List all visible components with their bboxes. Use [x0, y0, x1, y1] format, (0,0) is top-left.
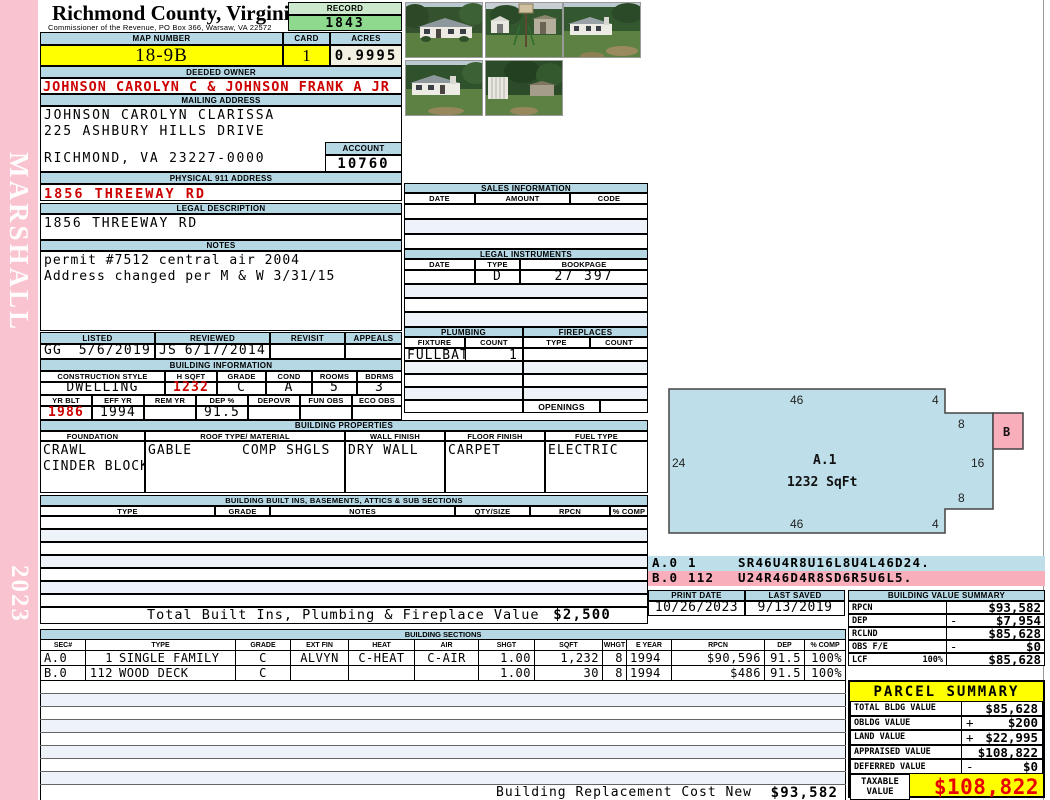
parcel-total-bldg-value: $85,628 — [985, 701, 1038, 716]
instrument-date-header: DATE — [404, 259, 475, 270]
type-b: 112WOOD DECK — [86, 666, 236, 681]
listed-value: GG 5/6/2019 — [40, 344, 155, 359]
parcel-summary-title: PARCEL SUMMARY — [850, 682, 1043, 701]
yrblt-value: 1986 — [40, 406, 92, 420]
instrument-row-bookpage: 27 397 — [520, 270, 648, 284]
extfin-b — [291, 666, 349, 681]
photo-house-lawn-image — [406, 61, 483, 116]
col-grade: GRADE — [236, 640, 291, 651]
col-sec: SEC# — [41, 640, 86, 651]
dep-a: 91.5 — [765, 651, 805, 666]
notes-box: permit #7512 central air 2004 Address ch… — [40, 251, 402, 331]
col-eyear: E YEAR — [627, 640, 672, 651]
notes-line-1: permit #7512 central air 2004 — [44, 254, 300, 269]
fireplace-row-empty — [523, 348, 648, 361]
taxable-label-line2: VALUE — [866, 787, 893, 797]
foundation-value: CRAWL CINDER BLOCK — [40, 441, 145, 493]
bdrms-value: 3 — [357, 382, 402, 395]
vector-a-path: SR46U4R8U16L8U4L46D24. — [738, 556, 930, 570]
sidebar-year-label: 2023 — [5, 565, 33, 623]
ecoobs-header: ECO OBS — [352, 395, 402, 406]
sketch-dim-bottom-step: 4 — [932, 517, 939, 531]
mailing-address-header: MAILING ADDRESS — [40, 94, 402, 106]
building-sections-table: BUILDING SECTIONS SEC# TYPE GRADE EXT FI… — [40, 629, 846, 800]
building-value-summary: RPCN $93,582 DEP -$7,954 RCLND $85,628 O… — [848, 601, 1045, 666]
parcel-deferred-label: DEFERRED VALUE — [850, 759, 962, 774]
col-heat: HEAT — [349, 640, 415, 651]
extfin-a: ALVYN — [291, 651, 349, 666]
plumbing-count-header: COUNT — [465, 337, 523, 348]
builtins-notes-header: NOTES — [270, 506, 455, 516]
type-b-name: WOOD DECK — [119, 666, 189, 680]
appeals-header: APPEALS — [345, 332, 402, 344]
sketch-area-sqft: 1232 SqFt — [787, 475, 857, 490]
mailing-line-1: JOHNSON CAROLYN CLARISSA — [44, 109, 275, 124]
col-type: TYPE — [86, 640, 236, 651]
parcel-obldg-sign: + — [966, 715, 974, 730]
parcel-row-obldg: OBLDG VALUE +$200 — [850, 716, 1043, 731]
grade-b: C — [236, 666, 291, 681]
sketch-area-label: A.1 — [813, 453, 837, 468]
instrument-row-empty — [404, 298, 648, 312]
sales-row-empty — [404, 204, 648, 219]
replacement-cost-label: Building Replacement Cost New — [496, 786, 752, 800]
legal-description-header: LEGAL DESCRIPTION — [40, 203, 402, 214]
sketch-dim-top: 46 — [790, 393, 804, 407]
foundation-header: FOUNDATION — [40, 431, 145, 441]
vector-b-path: U24R46D4R8SD6R5U6L5. — [738, 571, 913, 585]
foundation-line-1: CRAWL — [43, 444, 87, 459]
sketch-dim-left: 24 — [672, 456, 686, 470]
photo-yard-basketball-hoop[interactable] — [485, 2, 563, 58]
building-information-header: BUILDING INFORMATION — [40, 359, 402, 371]
photo-house-side-yard[interactable] — [563, 2, 641, 58]
vs-dep-label: DEP — [852, 616, 867, 626]
property-record-card: MARSHALL 2023 Richmond County, Virginia … — [0, 0, 1050, 800]
vs-lcf-pct: 100% — [923, 655, 943, 665]
vs-lcf-label: LCF — [852, 655, 867, 665]
plumbing-row-empty — [404, 387, 523, 400]
air-a: C-AIR — [415, 651, 479, 666]
legal-instruments-header: LEGAL INSTRUMENTS — [404, 249, 648, 259]
floor-finish-text: CARPET — [448, 444, 501, 459]
roof-header: ROOF TYPE/ MATERIAL — [145, 431, 345, 441]
whgt-b: 8 — [603, 666, 627, 681]
shgt-a: 1.00 — [479, 651, 535, 666]
physical-address-value: 1856 THREEWAY RD — [40, 184, 402, 201]
section-row-empty — [41, 746, 846, 759]
builtins-total-label: Total Built Ins, Plumbing & Fireplace Va… — [147, 608, 540, 624]
parcel-row-taxable: TAXABLE VALUE $108,822 — [850, 774, 1043, 800]
section-row-empty — [41, 707, 846, 720]
builtins-header: BUILDING BUILT INS, BASEMENTS, ATTICS & … — [40, 495, 648, 506]
remyr-value — [144, 406, 196, 420]
deeded-owner-header: DEEDED OWNER — [40, 66, 402, 78]
card-value: 1 — [283, 45, 330, 66]
builtins-row-empty — [40, 581, 648, 594]
physical-address-text: 1856 THREEWAY RD — [44, 187, 206, 203]
col-dep: DEP — [765, 640, 805, 651]
instrument-row-empty — [404, 312, 648, 327]
air-b — [415, 666, 479, 681]
comp-a: 100% — [805, 651, 846, 666]
card-header: CARD — [283, 32, 330, 45]
col-air: AIR — [415, 640, 479, 651]
parcel-land-value: $22,995 — [985, 730, 1038, 745]
parcel-obldg-value: $200 — [1008, 715, 1038, 730]
depovr-header: DEPOVR — [248, 395, 300, 406]
section-row-a: A.0 1SINGLE FAMILY C ALVYN C-HEAT C-AIR … — [41, 651, 846, 666]
sketch-dim-right-upper: 8 — [958, 417, 965, 431]
fuel-type-header: FUEL TYPE — [545, 431, 648, 441]
heat-b — [349, 666, 415, 681]
rpcn-a: $90,596 — [672, 651, 765, 666]
rooms-value: 5 — [312, 382, 357, 395]
grade-a: C — [236, 651, 291, 666]
depovr-value — [248, 406, 300, 420]
commissioner-subtitle: Commissioner of the Revenue, PO Box 366,… — [48, 23, 272, 32]
deeded-owner-value: JOHNSON CAROLYN C & JOHNSON FRANK A JR — [40, 78, 402, 94]
builtins-row-empty — [40, 594, 648, 607]
instrument-row-empty — [404, 284, 648, 298]
building-properties-header: BUILDING PROPERTIES — [40, 420, 648, 431]
legal-description-box: 1856 THREEWAY RD — [40, 214, 402, 240]
roof-value: GABLE COMP SHGLS — [145, 441, 345, 493]
builtins-type-header: TYPE — [40, 506, 215, 516]
map-number-value: 18-9B — [40, 45, 283, 66]
section-row-empty — [41, 759, 846, 772]
print-date-value: 10/26/2023 — [648, 601, 745, 616]
vector-b-code: 112 — [688, 571, 738, 585]
photo-shed-and-trailer[interactable] — [485, 60, 563, 116]
plumbing-row-empty — [404, 374, 523, 387]
fuel-type-text: ELECTRIC — [548, 444, 619, 459]
type-b-code: 112 — [89, 666, 113, 680]
photo-house-lawn[interactable] — [405, 60, 483, 116]
building-sections-title: BUILDING SECTIONS — [41, 630, 846, 640]
sales-row-empty — [404, 219, 648, 234]
parcel-total-bldg-label: TOTAL BLDG VALUE — [850, 701, 962, 716]
sec-a: A.0 — [41, 651, 86, 666]
notes-header: NOTES — [40, 240, 402, 251]
reviewed-value: JS 6/17/2014 — [155, 344, 270, 359]
photo-house-side-yard-image — [564, 3, 641, 58]
photo-shed-and-trailer-image — [486, 61, 563, 116]
remyr-header: REM YR — [144, 395, 196, 406]
parcel-row-appraised: APPRAISED VALUE $108,822 — [850, 745, 1043, 760]
parcel-deferred-value: $0 — [1023, 759, 1038, 774]
building-sketch: 46 4 8 16 8 4 46 24 A.1 1232 SqFt B — [655, 382, 1050, 542]
sidebar: MARSHALL 2023 — [0, 0, 38, 800]
photo-house-front-image — [406, 3, 483, 58]
reviewed-date: 6/17/2014 — [185, 344, 266, 359]
plumbing-count-value: 1 — [465, 348, 523, 361]
parcel-appraised-label: APPRAISED VALUE — [850, 745, 962, 760]
fireplace-count-header: COUNT — [590, 337, 648, 348]
shgt-b: 1.00 — [479, 666, 535, 681]
type-a: 1SINGLE FAMILY — [86, 651, 236, 666]
plumbing-fixture-header: FIXTURE — [404, 337, 465, 348]
acres-value: 0.9995 — [330, 45, 402, 66]
plumbing-row-empty — [404, 361, 523, 374]
plumbing-row-empty — [404, 400, 523, 413]
builtins-row-empty — [40, 542, 648, 555]
fireplace-row-empty — [523, 387, 648, 400]
dep-pct-value: 91.5 — [196, 406, 248, 420]
col-rpcn: RPCN — [672, 640, 765, 651]
sales-row-empty — [404, 234, 648, 249]
parcel-land-sign: + — [966, 730, 974, 745]
builtins-row-empty — [40, 568, 648, 581]
col-whgt: WHGT — [603, 640, 627, 651]
sketch-vector-a-row: A.0 1 SR46U4R8U16L8U4L46D24. — [648, 556, 1045, 571]
sales-information-header: SALES INFORMATION — [404, 183, 648, 193]
type-a-code: 1 — [89, 651, 113, 665]
fireplace-row-empty — [523, 374, 648, 387]
ecoobs-value — [352, 406, 402, 420]
sqft-a: 1,232 — [535, 651, 603, 666]
fireplace-row-empty — [523, 361, 648, 374]
last-saved-value: 9/13/2019 — [745, 601, 845, 616]
vs-rpcn-label: RPCN — [852, 603, 872, 613]
revisit-header: REVISIT — [270, 332, 345, 344]
parcel-appraised-value: $108,822 — [978, 745, 1038, 760]
funobs-header: FUN OBS — [300, 395, 352, 406]
parcel-obldg-label: OBLDG VALUE — [850, 716, 962, 731]
vs-row-rclnd: RCLND $85,628 — [848, 627, 1045, 640]
floor-finish-header: FLOOR FINISH — [445, 431, 545, 441]
sales-code-header: CODE — [570, 193, 648, 204]
section-row-empty — [41, 694, 846, 707]
account-header: ACCOUNT — [325, 142, 402, 155]
type-a-name: SINGLE FAMILY — [119, 651, 219, 665]
revisit-value — [270, 344, 345, 359]
instrument-row-date — [404, 270, 475, 284]
instrument-row-type: D — [475, 270, 520, 284]
dep-b: 91.5 — [765, 666, 805, 681]
fireplaces-header: FIREPLACES — [523, 327, 648, 337]
sales-date-header: DATE — [404, 193, 475, 204]
builtins-total-row: Total Built Ins, Plumbing & Fireplace Va… — [40, 607, 648, 624]
wall-finish-value: DRY WALL — [345, 441, 445, 493]
builtins-rpcn-header: RPCN — [530, 506, 610, 516]
wall-finish-header: WALL FINISH — [345, 431, 445, 441]
vs-lcf-value: $85,628 — [988, 652, 1041, 667]
effyr-value: 1994 — [92, 406, 144, 420]
funobs-value — [300, 406, 352, 420]
parcel-row-total-bldg: TOTAL BLDG VALUE $85,628 — [850, 701, 1043, 716]
foundation-line-2: CINDER BLOCK — [43, 460, 149, 475]
builtins-total-value: $2,500 — [553, 607, 611, 623]
taxable-label-line1: TAXABLE — [861, 777, 899, 787]
section-row-empty — [41, 733, 846, 746]
reviewed-by: JS — [159, 344, 177, 359]
cond-value: A — [266, 382, 312, 395]
building-sections-header-row: SEC# TYPE GRADE EXT FIN HEAT AIR SHGT SQ… — [41, 640, 846, 651]
plumbing-fixture-value: FULLBATH — [404, 348, 465, 361]
replacement-cost-row: Building Replacement Cost New $93,582 — [41, 785, 846, 800]
parcel-land-label: LAND VALUE — [850, 730, 962, 745]
mailing-line-2: 225 ASHBURY HILLS DRIVE — [44, 125, 265, 140]
vs-dep-sign: - — [950, 614, 957, 628]
plumbing-header: PLUMBING — [404, 327, 523, 337]
hsqft-value: 1232 — [165, 382, 217, 395]
sales-amount-header: AMOUNT — [475, 193, 570, 204]
mailing-line-3: RICHMOND, VA 23227-0000 — [44, 152, 265, 167]
map-number-header: MAP NUMBER — [40, 32, 283, 45]
vs-obs-sign: - — [950, 640, 957, 654]
whgt-a: 8 — [603, 651, 627, 666]
section-row-empty — [41, 681, 846, 694]
parcel-deferred-sign: - — [966, 759, 974, 774]
builtins-row-empty — [40, 555, 648, 568]
physical-address-header: PHYSICAL 911 ADDRESS — [40, 172, 402, 184]
openings-label: OPENINGS — [523, 400, 600, 413]
vector-a-code: 1 — [688, 556, 738, 570]
photo-house-front[interactable] — [405, 2, 483, 58]
sqft-b: 30 — [535, 666, 603, 681]
taxable-value: $108,822 — [934, 775, 1039, 799]
fireplace-type-header: TYPE — [523, 337, 590, 348]
section-row-empty — [41, 720, 846, 733]
roof-material-text: COMP SHGLS — [242, 444, 330, 459]
sketch-b-label: B — [1003, 425, 1010, 439]
parcel-row-deferred: DEFERRED VALUE -$0 — [850, 759, 1043, 774]
fuel-type-value: ELECTRIC — [545, 441, 648, 493]
roof-type-text: GABLE — [148, 444, 192, 459]
builtins-qty-header: QTY/SIZE — [455, 506, 530, 516]
wall-finish-text: DRY WALL — [348, 444, 419, 459]
vs-rclnd-label: RCLND — [852, 629, 878, 639]
builtins-row-empty — [40, 529, 648, 542]
sketch-vector-b-row: B.0 112 U24R46D4R8SD6R5U6L5. — [648, 571, 1045, 586]
notes-line-2: Address changed per M & W 3/31/15 — [44, 270, 335, 285]
record-header: RECORD — [288, 2, 402, 15]
floor-finish-value: CARPET — [445, 441, 545, 493]
listed-by: GG — [44, 344, 62, 359]
col-shgt: SHGT — [479, 640, 535, 651]
openings-value — [600, 400, 648, 413]
sketch-dim-right-lower: 8 — [958, 491, 965, 505]
col-comp: % COMP — [805, 640, 846, 651]
grade-value: C — [217, 382, 266, 395]
parcel-row-land: LAND VALUE +$22,995 — [850, 730, 1043, 745]
listed-date: 5/6/2019 — [79, 344, 151, 359]
section-row-b: B.0 112WOOD DECK C 1.00 30 8 1994 $486 9… — [41, 666, 846, 681]
photo-yard-basketball-hoop-image — [486, 3, 563, 58]
comp-b: 100% — [805, 666, 846, 681]
sketch-dim-bottom: 46 — [790, 517, 804, 531]
col-sqft: SQFT — [535, 640, 603, 651]
account-value: 10760 — [325, 155, 402, 172]
eyear-a: 1994 — [627, 651, 672, 666]
replacement-cost-value: $93,582 — [771, 785, 838, 800]
acres-header: ACRES — [330, 32, 402, 45]
vector-a-sec: A.0 — [652, 556, 688, 570]
builtins-comp-header: % COMP — [610, 506, 648, 516]
vs-row-lcf: LCF100% $85,628 — [848, 653, 1045, 666]
heat-a: C-HEAT — [349, 651, 415, 666]
eyear-b: 1994 — [627, 666, 672, 681]
sidebar-agency-label: MARSHALL — [3, 152, 34, 332]
sketch-dim-top-step: 4 — [932, 393, 939, 407]
appeals-value — [345, 344, 402, 359]
builtins-grade-header: GRADE — [215, 506, 270, 516]
legal-description-text: 1856 THREEWAY RD — [44, 217, 198, 232]
col-extfin: EXT FIN — [291, 640, 349, 651]
vector-b-sec: B.0 — [652, 571, 688, 585]
record-value: 1843 — [288, 15, 402, 31]
sec-b: B.0 — [41, 666, 86, 681]
rpcn-b: $486 — [672, 666, 765, 681]
section-row-empty — [41, 772, 846, 785]
vs-obs-label: OBS F/E — [852, 642, 888, 652]
construction-style-value: DWELLING — [40, 382, 165, 395]
builtins-row-empty — [40, 516, 648, 529]
parcel-summary: PARCEL SUMMARY TOTAL BLDG VALUE $85,628 … — [848, 680, 1045, 798]
sketch-dim-right: 16 — [971, 456, 985, 470]
